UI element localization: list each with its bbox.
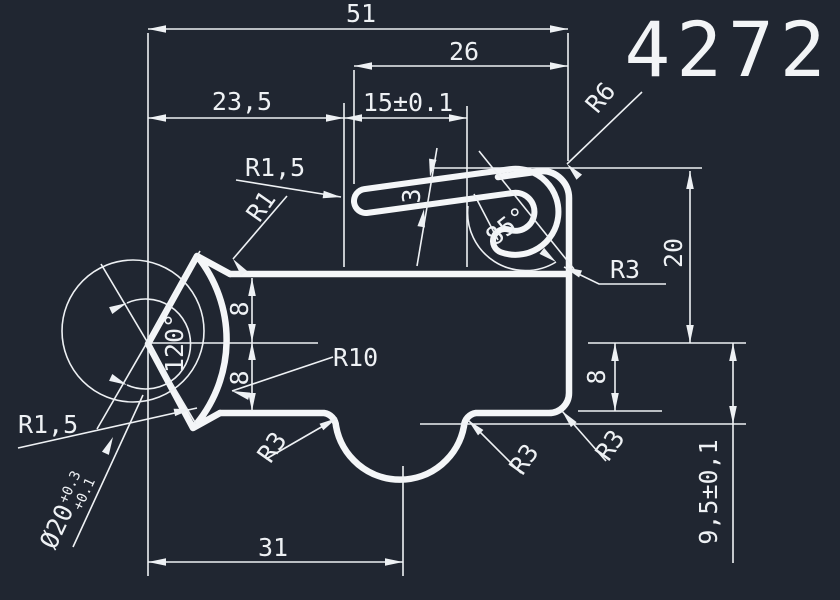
dim-31-text: 31: [258, 533, 288, 562]
dim-8-right-text: 8: [582, 369, 611, 384]
radius-r6-text: R6: [580, 77, 622, 119]
radius-r3-hook-text: R3: [610, 255, 640, 284]
dim-9-5-text: 9,5±0,1: [694, 439, 723, 544]
dim-15-text: 15±0.1: [363, 88, 453, 117]
dim-20-text: 20: [659, 238, 688, 268]
dim-26-text: 26: [449, 37, 479, 66]
radius-r3-scallop-right-text: R3: [504, 438, 545, 479]
radius-r1-5-bottom-text: R1,5: [18, 410, 78, 439]
radius-r1-5-top-text: R1,5: [245, 153, 305, 182]
dim-8-left-lower-text: 8: [225, 370, 254, 385]
radius-r10-text: R10: [333, 343, 378, 372]
dim-8-left-upper-text: 8: [225, 301, 254, 316]
dim-23-5-text: 23,5: [212, 87, 272, 116]
radius-r3-scallop-left-text: R3: [252, 426, 293, 467]
radius-r3-corner-text: R3: [590, 424, 631, 465]
dim-51-text: 51: [346, 0, 376, 28]
drawing-canvas[interactable]: 4272 51 26 23,5 15±0.1 31 3 8 8 20 8 9,5…: [0, 0, 840, 600]
angle-120-text: 120°: [160, 313, 189, 373]
leader-dia20: [73, 395, 143, 547]
radius-r1-text: R1: [241, 185, 282, 226]
dim-3-text: 3: [397, 188, 426, 203]
drawing-number: 4272: [624, 5, 831, 94]
cad-viewport[interactable]: 4272 51 26 23,5 15±0.1 31 3 8 8 20 8 9,5…: [0, 0, 840, 600]
